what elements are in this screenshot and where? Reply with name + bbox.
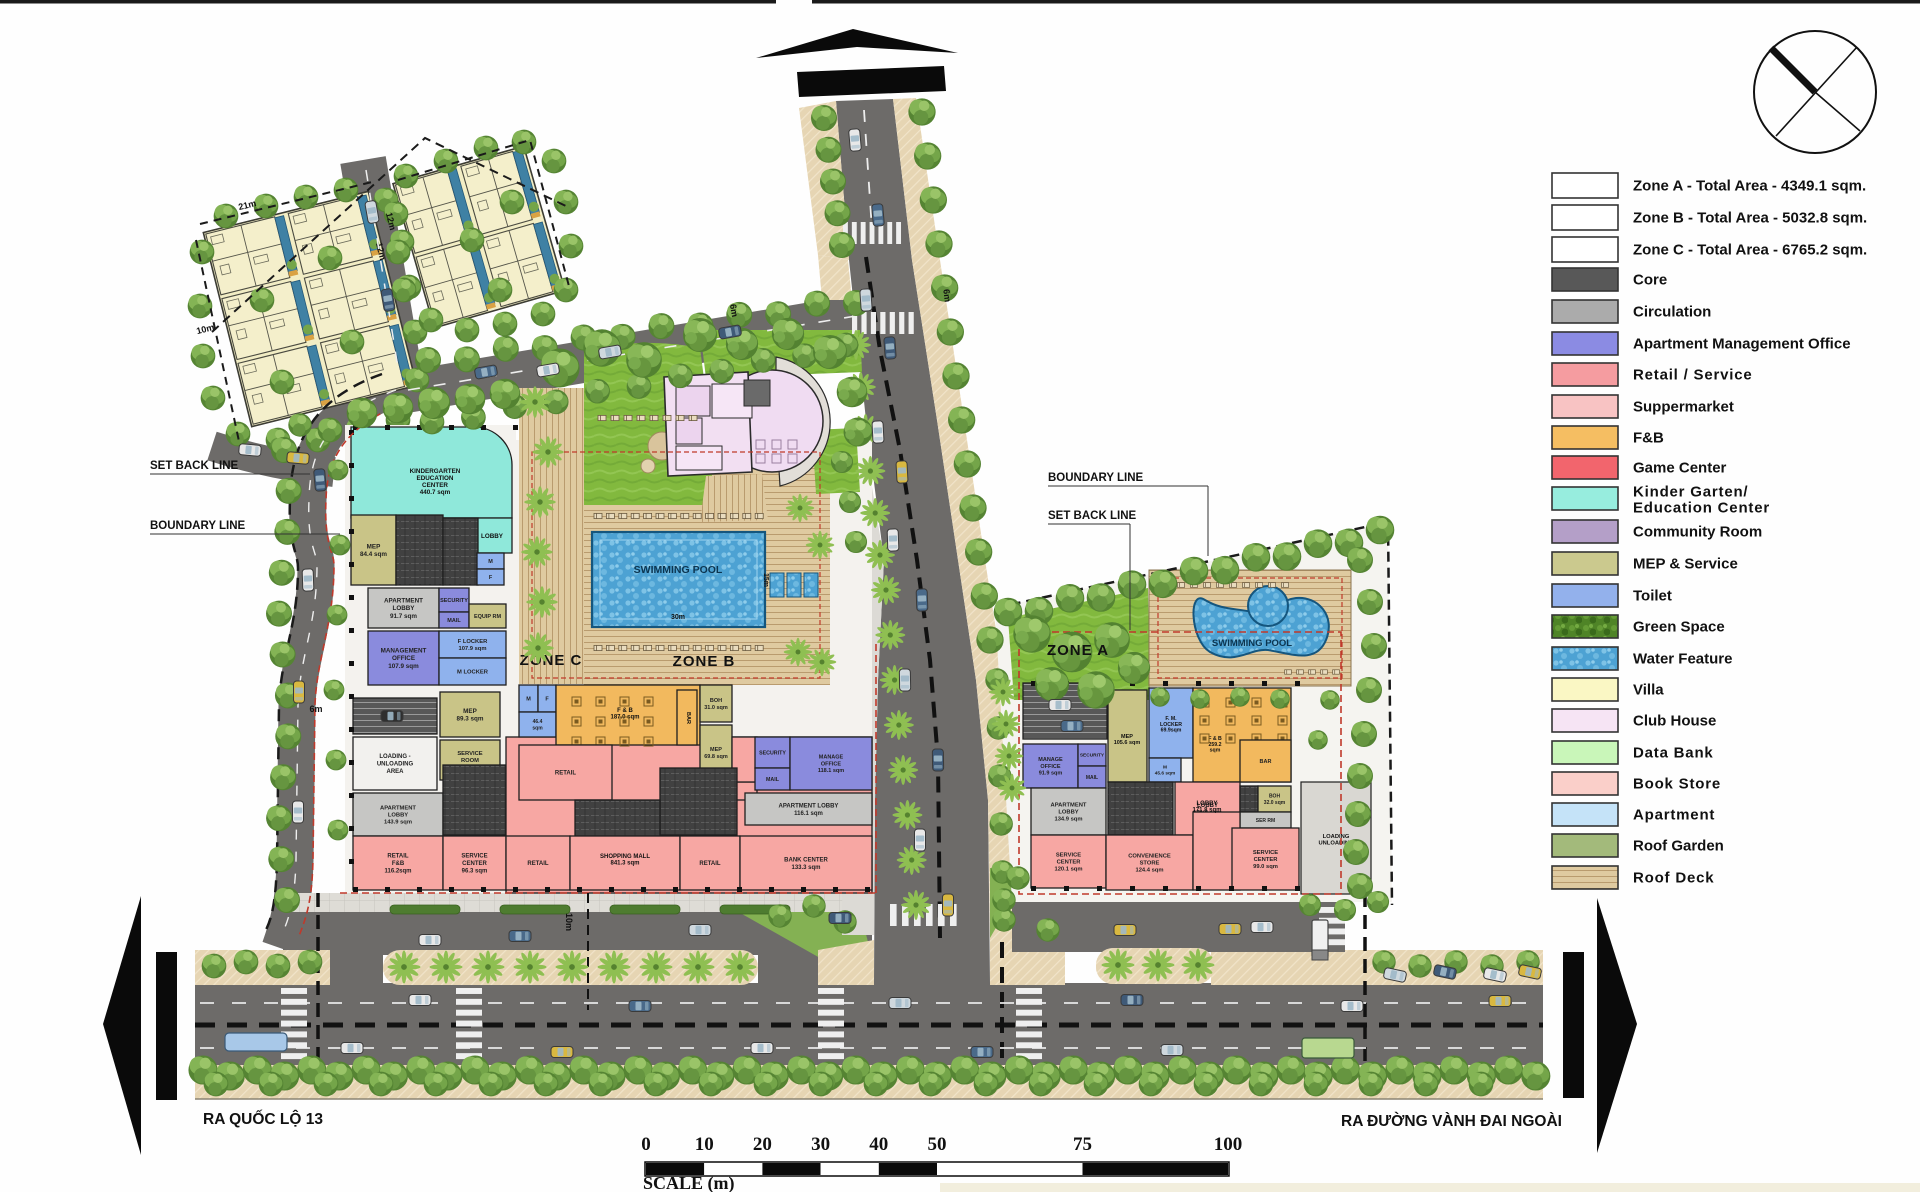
svg-text:LOBBY: LOBBY: [481, 533, 504, 540]
svg-text:Community Room: Community Room: [1633, 524, 1762, 541]
svg-text:50: 50: [928, 1134, 947, 1155]
svg-text:EQUIP RM: EQUIP RM: [474, 614, 502, 620]
svg-text:BOUNDARY LINE: BOUNDARY LINE: [150, 520, 246, 532]
svg-text:10m: 10m: [564, 913, 574, 931]
svg-text:SECURITY: SECURITY: [759, 750, 786, 756]
svg-text:Data Bank: Data Bank: [1633, 745, 1714, 762]
svg-text:RA ĐƯỜNG VÀNH ĐAI NGOÀI: RA ĐƯỜNG VÀNH ĐAI NGOÀI: [1341, 1112, 1562, 1130]
svg-text:MANAGEOFFICE91.9 sqm: MANAGEOFFICE91.9 sqm: [1038, 757, 1063, 777]
svg-text:Apartment: Apartment: [1633, 807, 1715, 824]
svg-text:RETAIL: RETAIL: [699, 861, 721, 867]
svg-text:BOUNDARY LINE: BOUNDARY LINE: [1048, 472, 1144, 484]
svg-text:Zone A - Total Area - 4349.1 s: Zone A - Total Area - 4349.1 sqm.: [1633, 178, 1866, 195]
svg-text:M LOCKER: M LOCKER: [457, 670, 489, 676]
svg-text:SERVICECENTER96.3 sqm: SERVICECENTER96.3 sqm: [461, 854, 487, 875]
svg-text:Villa: Villa: [1633, 682, 1664, 699]
svg-text:MAIL: MAIL: [447, 618, 461, 624]
svg-text:F&B: F&B: [1633, 430, 1664, 447]
svg-text:SERVICECENTER99.0 sqm: SERVICECENTER99.0 sqm: [1253, 850, 1278, 870]
svg-text:46.4sqm: 46.4sqm: [532, 719, 543, 731]
svg-text:Book Store: Book Store: [1633, 776, 1721, 793]
svg-text:SCALE (m): SCALE (m): [643, 1173, 735, 1192]
svg-text:Club House: Club House: [1633, 713, 1716, 730]
svg-text:30m: 30m: [671, 614, 685, 621]
svg-text:F LOCKER107.9 sqm: F LOCKER107.9 sqm: [458, 639, 488, 652]
svg-text:Retail / Service: Retail / Service: [1633, 367, 1753, 384]
svg-text:10: 10: [695, 1134, 714, 1155]
svg-text:F & B259.2sqm: F & B259.2sqm: [1208, 736, 1222, 754]
svg-text:Roof Garden: Roof Garden: [1633, 838, 1724, 855]
svg-text:Toilet: Toilet: [1633, 588, 1672, 605]
svg-text:0: 0: [641, 1134, 651, 1155]
svg-text:75: 75: [1073, 1134, 1092, 1155]
svg-text:ZONE B: ZONE B: [673, 653, 736, 670]
svg-text:20: 20: [753, 1134, 772, 1155]
svg-text:SECURITY: SECURITY: [1080, 753, 1105, 759]
svg-text:LOBBY171.8 sqm: LOBBY171.8 sqm: [1192, 801, 1221, 814]
svg-text:Education Center: Education Center: [1633, 500, 1770, 517]
svg-text:RA QUỐC LỘ 13: RA QUỐC LỘ 13: [203, 1110, 323, 1128]
svg-text:SWIMMING POOL: SWIMMING POOL: [634, 564, 723, 576]
svg-text:Game Center: Game Center: [1633, 460, 1727, 477]
svg-text:SET BACK LINE: SET BACK LINE: [150, 460, 239, 472]
svg-text:6m: 6m: [309, 704, 322, 714]
svg-text:RETAIL: RETAIL: [555, 771, 577, 777]
svg-text:Circulation: Circulation: [1633, 304, 1711, 321]
svg-text:M: M: [526, 696, 531, 702]
svg-text:ZONE A: ZONE A: [1047, 642, 1109, 659]
svg-text:Green Space: Green Space: [1633, 619, 1725, 636]
svg-text:MEP & Service: MEP & Service: [1633, 556, 1738, 573]
svg-text:Zone C - Total Area - 6765.2 s: Zone C - Total Area - 6765.2 sqm.: [1633, 242, 1867, 259]
svg-text:40: 40: [869, 1134, 888, 1155]
svg-text:BAR: BAR: [685, 712, 691, 724]
svg-text:RETAIL: RETAIL: [527, 861, 549, 867]
svg-text:SER RM: SER RM: [1256, 818, 1275, 824]
svg-text:SERVICECENTER120.1 sqm: SERVICECENTER120.1 sqm: [1054, 852, 1082, 872]
svg-text:Kinder Garten/: Kinder Garten/: [1633, 484, 1748, 501]
svg-text:Apartment Management Office: Apartment Management Office: [1633, 336, 1851, 353]
svg-text:15m: 15m: [762, 573, 769, 587]
svg-text:Water Feature: Water Feature: [1633, 651, 1732, 668]
svg-text:MAIL: MAIL: [766, 777, 780, 783]
svg-text:Roof Deck: Roof Deck: [1633, 870, 1714, 887]
svg-text:Suppermarket: Suppermarket: [1633, 399, 1734, 416]
svg-text:Zone B - Total Area - 5032.8 s: Zone B - Total Area - 5032.8 sqm.: [1633, 210, 1867, 227]
svg-text:100: 100: [1214, 1134, 1243, 1155]
svg-text:Core: Core: [1633, 272, 1667, 289]
svg-text:M: M: [488, 559, 493, 565]
svg-text:SET BACK LINE: SET BACK LINE: [1048, 510, 1137, 522]
svg-text:30: 30: [811, 1134, 830, 1155]
svg-text:MANAGEOFFICE118.1 sqm: MANAGEOFFICE118.1 sqm: [818, 755, 844, 775]
svg-text:SWIMMING POOL: SWIMMING POOL: [1212, 638, 1292, 649]
svg-text:MAIL: MAIL: [1086, 775, 1098, 781]
svg-text:SECURITY: SECURITY: [440, 598, 468, 604]
svg-text:BAR: BAR: [1260, 759, 1272, 765]
svg-text:6m: 6m: [941, 289, 953, 303]
